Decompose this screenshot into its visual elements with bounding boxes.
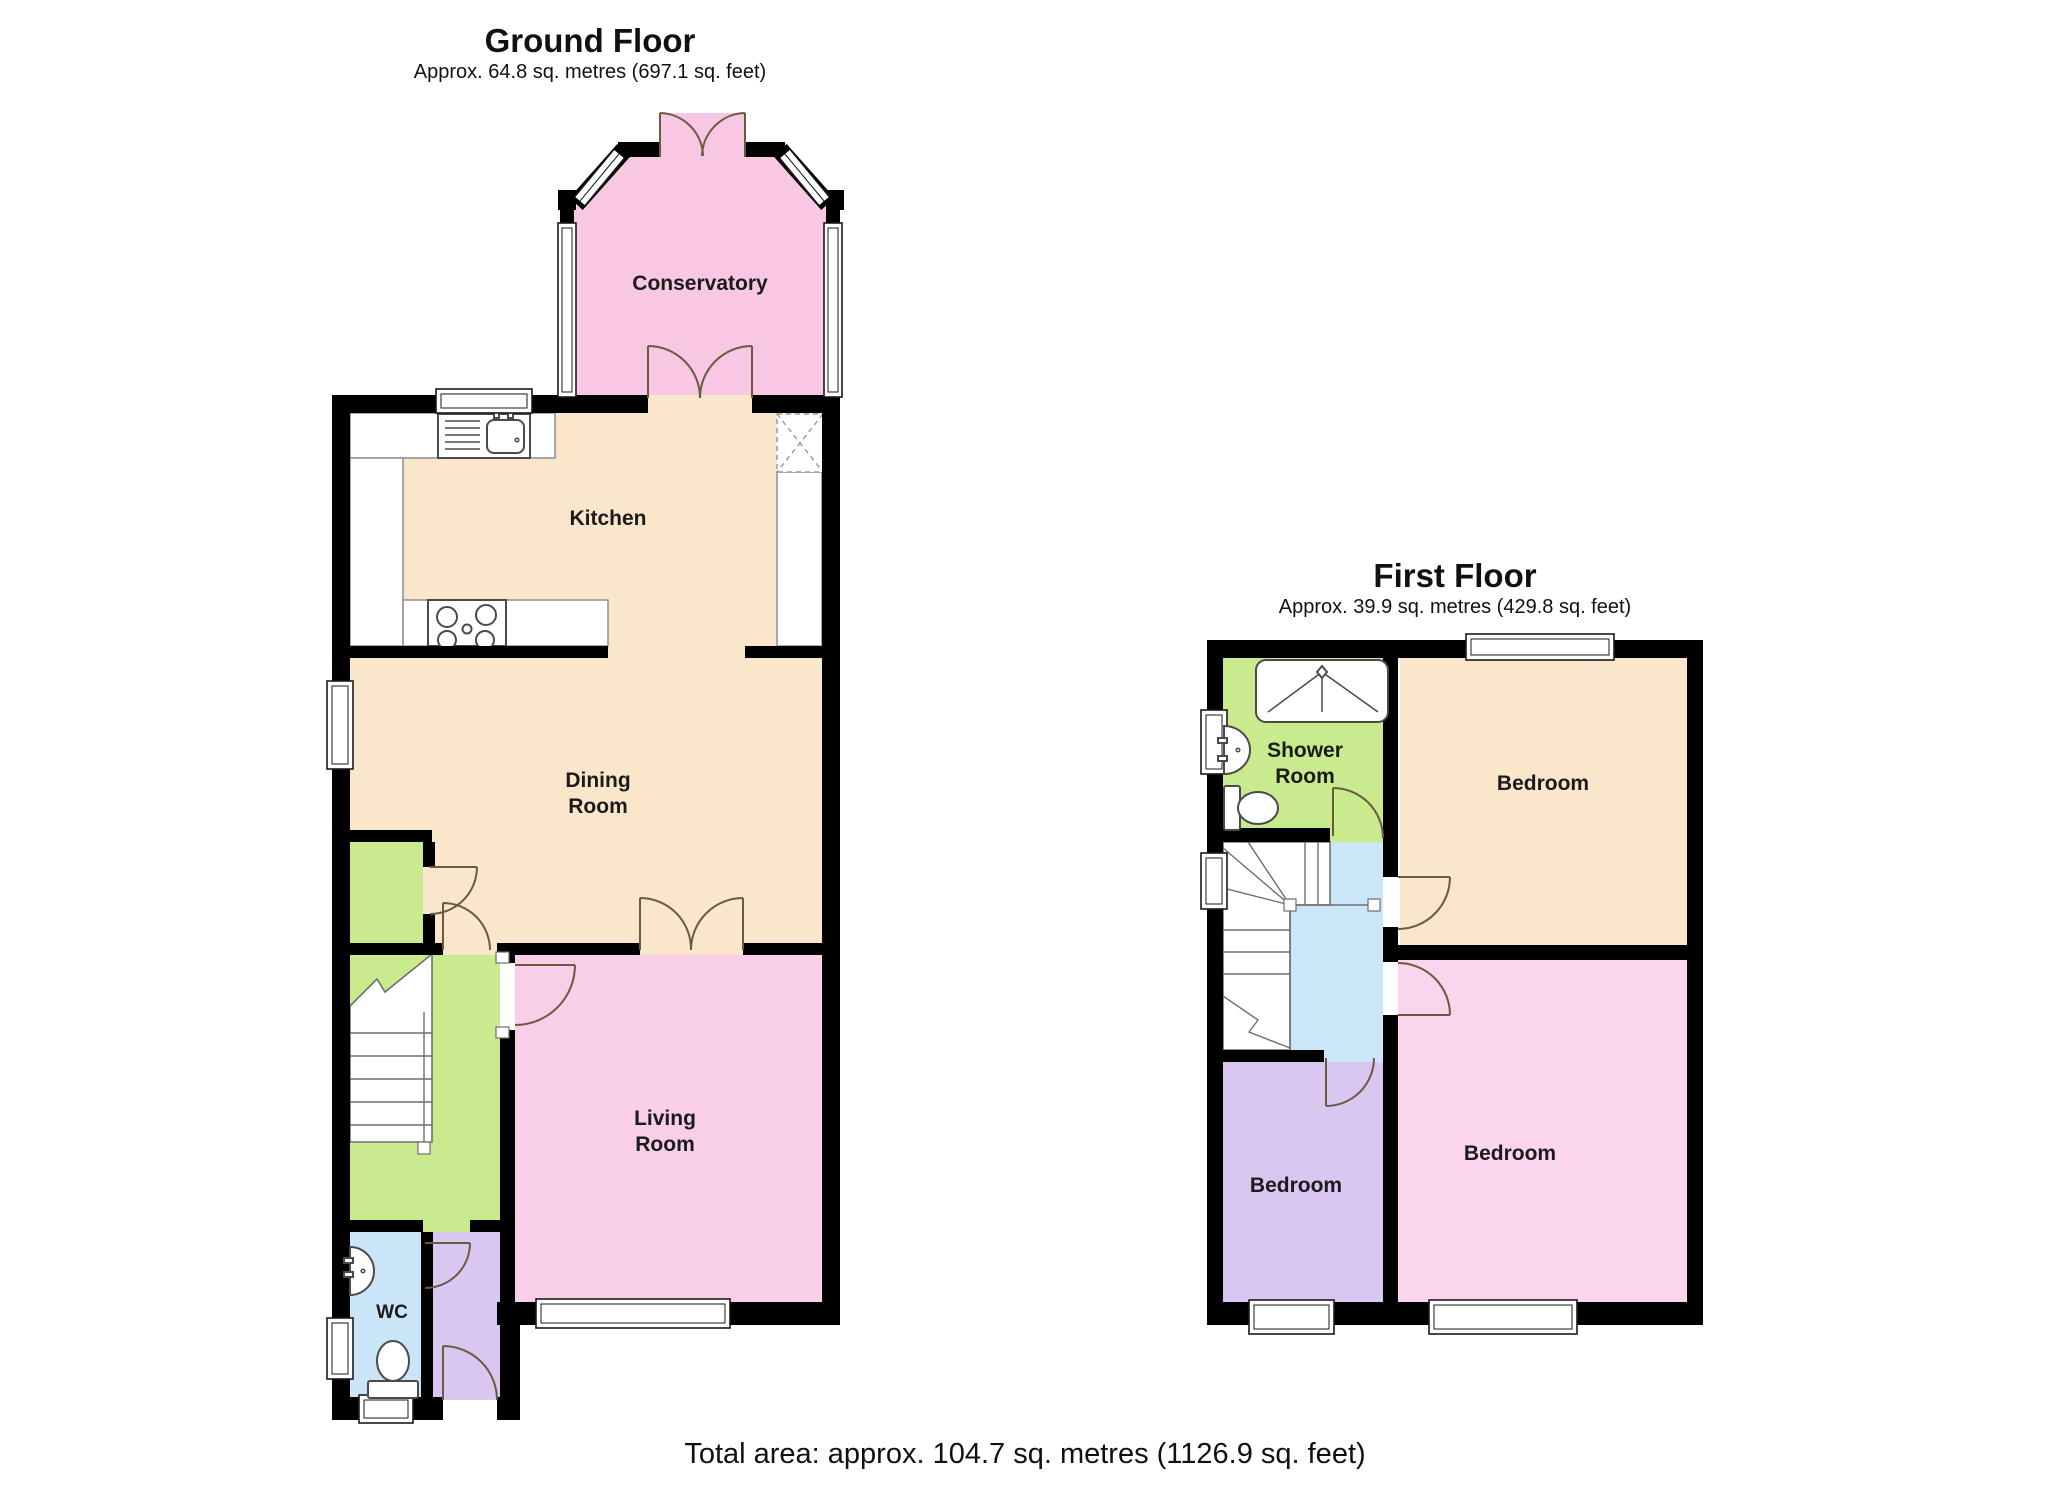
kitchen-hob-icon [428,600,506,649]
first-floor-title: First Floor [1373,557,1536,594]
bedroom-front-label: Bedroom [1497,772,1589,795]
bedroom-small-window [1249,1300,1334,1334]
first-floor-plan: Shower Room Bedroom Bedroom Bedroom Firs… [1201,557,1703,1334]
living-label-line1: Living [634,1107,696,1130]
total-area-label: Total area: approx. 104.7 sq. metres (11… [684,1438,1365,1470]
wc-label: WC [376,1302,408,1323]
dining-window [327,681,353,769]
room-bedroom-rear [1398,960,1687,1302]
ground-floor-title: Ground Floor [485,22,696,59]
first-floor-subtitle: Approx. 39.9 sq. metres (429.8 sq. feet) [1279,596,1631,618]
bedroom-front-window [1466,634,1614,660]
conservatory-right-window [824,223,842,397]
dining-label-line2: Room [568,795,628,818]
floorplan-drawing: Conservatory Kitchen Dining Room Living … [0,0,2048,1489]
ground-floor-subtitle: Approx. 64.8 sq. metres (697.1 sq. feet) [414,61,766,83]
kitchen-label: Kitchen [569,507,646,530]
kitchen-sink-icon [438,409,530,458]
ground-floor-plan: Conservatory Kitchen Dining Room Living … [327,22,844,1423]
shower-tray-icon [1256,660,1388,722]
wc-side-window [327,1318,353,1379]
room-store-cupboard [350,842,423,955]
kitchen-window [436,389,532,413]
shower-label-line1: Shower [1267,739,1343,762]
living-label-line2: Room [635,1133,695,1156]
bedroom-rear-label: Bedroom [1464,1142,1556,1165]
stairs-window [1201,853,1227,909]
wc-rear-window [359,1395,413,1423]
bedroom-rear-window [1429,1300,1577,1334]
conservatory-left-window [558,223,576,397]
shower-label-line2: Room [1275,765,1335,788]
dining-label-line1: Dining [565,769,630,792]
conservatory-label: Conservatory [632,272,768,295]
floorplan-page: Conservatory Kitchen Dining Room Living … [0,0,2048,1489]
bedroom-small-label: Bedroom [1250,1174,1342,1197]
living-window [536,1299,730,1328]
